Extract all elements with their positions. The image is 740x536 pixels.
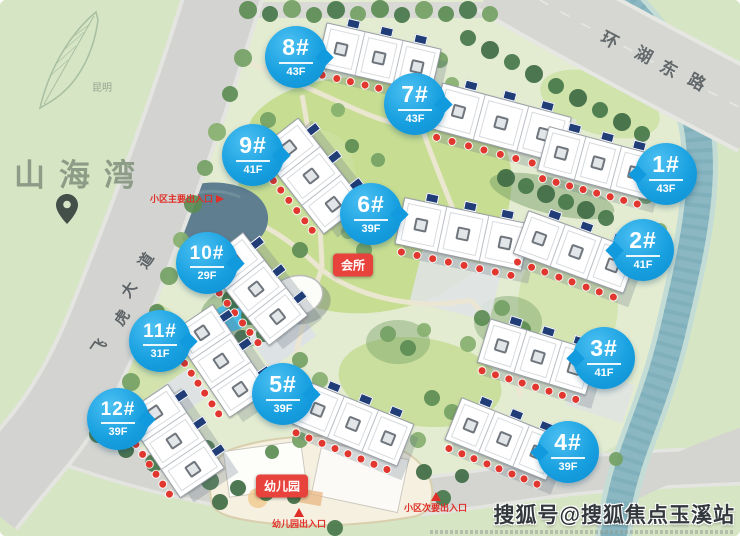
building-badge-8: 8#43F [265,26,327,88]
main-entrance-text: 小区主要出入口 [150,194,213,205]
badge-divider [354,219,388,221]
floor-count: 43F [406,113,425,125]
building-number: 7# [401,83,429,106]
badge-divider [398,109,432,111]
secondary-entrance-label: 小区次要出入口 [404,492,467,514]
floor-count: 31F [151,348,170,360]
floor-count: 43F [657,183,676,195]
building-badge-1: 1#43F [635,143,697,205]
kindergarten-label: 幼儿园 [256,475,308,498]
building-badge-6: 6#39F [340,183,402,245]
badge-divider [626,255,660,257]
building-badge-3: 3#41F [573,327,635,389]
fine-print-line [430,530,735,534]
leaf-sketch-icon [28,6,123,116]
building-badge-4: 4#39F [537,421,599,483]
kindergarten-entrance-text: 幼儿园出入口 [272,519,326,530]
badge-divider [190,266,224,268]
watermark: 搜狐号@搜狐焦点玉溪站 [494,499,735,529]
badge-divider [551,457,585,459]
building-number: 2# [629,229,657,252]
building-badge-7: 7#43F [384,73,446,135]
clubhouse-label: 会所 [333,254,373,277]
floor-count: 39F [362,223,381,235]
badge-divider [266,399,300,401]
building-badge-2: 2#41F [612,219,674,281]
building-badge-9: 9#41F [222,124,284,186]
building-badge-5: 5#39F [252,363,314,425]
building-number: 8# [282,36,310,59]
floor-count: 41F [244,164,263,176]
floor-count: 39F [559,461,578,473]
floor-count: 41F [595,367,614,379]
floor-count: 39F [274,403,293,415]
secondary-entrance-text: 小区次要出入口 [404,503,467,514]
badge-divider [236,160,270,162]
building-number: 11# [143,322,177,341]
badge-divider [587,363,621,365]
kindergarten-entrance-label: 幼儿园出入口 [272,508,326,530]
badge-divider [143,344,177,346]
arrow-right-icon [216,195,224,203]
building-number: 3# [590,337,618,360]
badge-divider [101,422,135,424]
project-name: 山海湾 [14,150,149,195]
floor-count: 41F [634,259,653,271]
badge-divider [649,179,683,181]
arrow-up-icon [431,492,441,501]
floor-count: 39F [109,426,128,438]
building-number: 9# [239,134,267,157]
badge-divider [279,62,313,64]
city-label: 昆明 [92,79,112,94]
building-number: 10# [190,244,225,263]
floor-count: 29F [198,270,217,282]
site-plan-map: 1#43F2#41F3#41F4#39F5#39F6#39F7#43F8#43F… [0,0,740,536]
location-pin-icon [56,194,78,229]
arrow-up-icon [294,508,304,517]
building-number: 1# [652,153,680,176]
building-badge-11: 11#31F [129,310,191,372]
building-number: 12# [101,400,136,419]
building-number: 6# [357,193,385,216]
floor-count: 43F [287,66,306,78]
building-badge-10: 10#29F [176,232,238,294]
building-number: 4# [554,431,582,454]
building-badge-12: 12#39F [87,388,149,450]
main-entrance-label: 小区主要出入口 [150,194,224,205]
building-number: 5# [269,373,297,396]
